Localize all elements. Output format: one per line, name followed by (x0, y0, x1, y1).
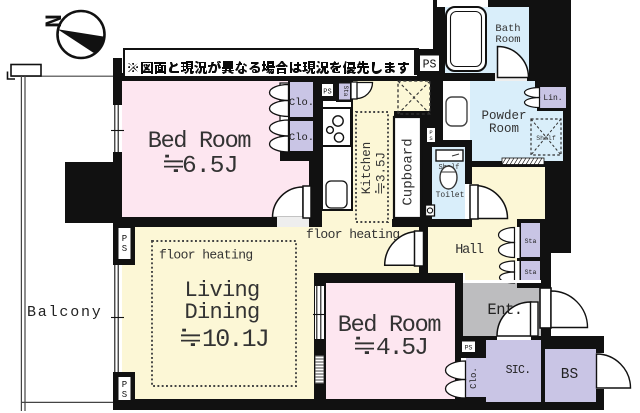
svg-text:Sta: Sta (525, 238, 537, 245)
svg-text:floor heating: floor heating (159, 248, 253, 263)
svg-text:6.5J: 6.5J (182, 153, 238, 180)
svg-text:Lin.: Lin. (543, 94, 562, 103)
svg-text:S: S (122, 244, 127, 254)
svg-text:Clo.: Clo. (469, 367, 479, 389)
svg-text:Clo.: Clo. (289, 97, 314, 109)
svg-text:4.5J: 4.5J (376, 335, 427, 362)
svg-text:Room: Room (495, 34, 520, 46)
svg-text:Powder: Powder (481, 109, 526, 123)
svg-text:Sta: Sta (342, 86, 349, 97)
svg-text:Balcony: Balcony (27, 304, 103, 321)
svg-text:P: P (122, 380, 127, 390)
svg-text:Cupboard: Cupboard (401, 138, 417, 205)
svg-text:PS: PS (323, 89, 331, 97)
svg-text:10.1J: 10.1J (202, 325, 268, 354)
svg-text:Shelf: Shelf (536, 135, 556, 142)
svg-text:Room: Room (489, 122, 519, 136)
svg-text:Clo.: Clo. (289, 132, 314, 144)
svg-text:Ent.: Ent. (487, 301, 522, 319)
svg-text:PS: PS (465, 345, 473, 352)
svg-text:BS: BS (561, 367, 578, 383)
svg-text:N: N (38, 14, 64, 28)
svg-text:PS: PS (423, 59, 437, 72)
svg-text:Toilet: Toilet (436, 191, 465, 200)
svg-text:Dining: Dining (184, 300, 259, 325)
svg-text:SIC.: SIC. (506, 364, 531, 377)
svg-text:floor heating: floor heating (306, 227, 400, 242)
svg-text:P: P (122, 234, 127, 244)
svg-text:Kitchen: Kitchen (360, 142, 374, 195)
svg-text:3.5J: 3.5J (375, 152, 389, 182)
svg-text:Bed Room: Bed Room (148, 128, 251, 155)
svg-text:S: S (122, 390, 127, 400)
svg-text:Sta: Sta (525, 269, 537, 276)
svg-text:Hall: Hall (455, 243, 484, 258)
